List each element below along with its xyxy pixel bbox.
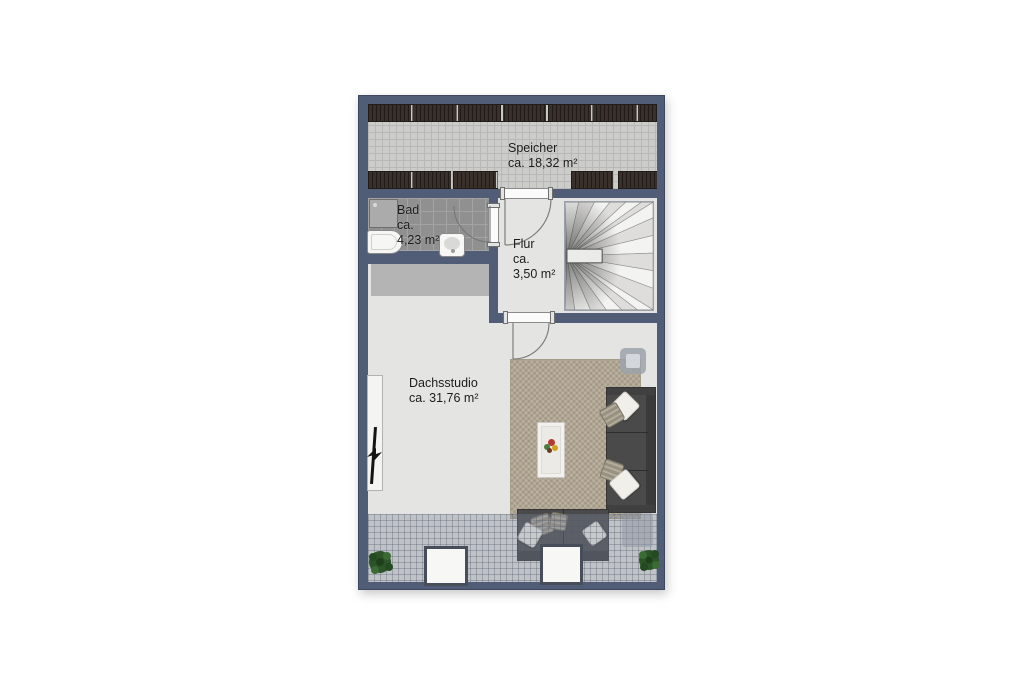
- skylight-window: [424, 546, 468, 586]
- pillow: [549, 512, 569, 532]
- room-area-approx: ca.: [397, 218, 439, 233]
- floorplan: Speicher ca. 18,32 m² Bad ca. 4,23 m² Fl…: [358, 95, 665, 590]
- room-label-bad: Bad ca. 4,23 m²: [397, 203, 439, 247]
- door-frame-speicher-flur: [500, 188, 553, 199]
- roof-slope-band: [371, 264, 489, 296]
- roof-beam-strip-bottom: [368, 171, 451, 189]
- room-name: Speicher: [508, 141, 577, 156]
- room-name: Bad: [397, 203, 439, 218]
- side-block: [622, 513, 653, 547]
- staircase: [564, 201, 654, 311]
- shower: [369, 199, 398, 228]
- roof-beam-strip-bottom: [618, 171, 657, 189]
- skylight-window: [540, 544, 583, 585]
- roof-beam-strip-bottom: [571, 171, 613, 189]
- room-area: 4,23 m²: [397, 233, 439, 248]
- coffee-table: [537, 422, 565, 478]
- sofa-armrest: [607, 388, 655, 395]
- room-name: Dachsstudio: [409, 376, 478, 391]
- room-label-speicher: Speicher ca. 18,32 m²: [508, 141, 577, 171]
- roof-beam-strip-bottom: [453, 171, 498, 189]
- door-frame-flur-dachsstudio: [503, 312, 555, 323]
- sofa-seat-divider: [607, 432, 648, 433]
- ottoman: [620, 348, 646, 374]
- plant: [635, 546, 665, 576]
- room-area: ca. 18,32 m²: [508, 156, 577, 171]
- sofa-backrest: [646, 388, 655, 512]
- flower-decoration: [552, 445, 558, 451]
- flower-decoration: [547, 448, 552, 453]
- door-frame-bad-flur: [488, 203, 499, 247]
- room-name: Flur: [513, 237, 555, 252]
- room-label-flur: Flur ca. 3,50 m²: [513, 237, 555, 281]
- plant: [365, 547, 395, 577]
- room-area: 3,50 m²: [513, 267, 555, 282]
- roof-beam-strip-top: [368, 104, 657, 122]
- room-area-approx: ca.: [513, 252, 555, 267]
- room-area: ca. 31,76 m²: [409, 391, 478, 406]
- stair-handrail: [567, 249, 602, 263]
- sink: [439, 233, 465, 257]
- room-label-dachsstudio: Dachsstudio ca. 31,76 m²: [409, 376, 478, 406]
- sofa-armrest: [607, 505, 655, 512]
